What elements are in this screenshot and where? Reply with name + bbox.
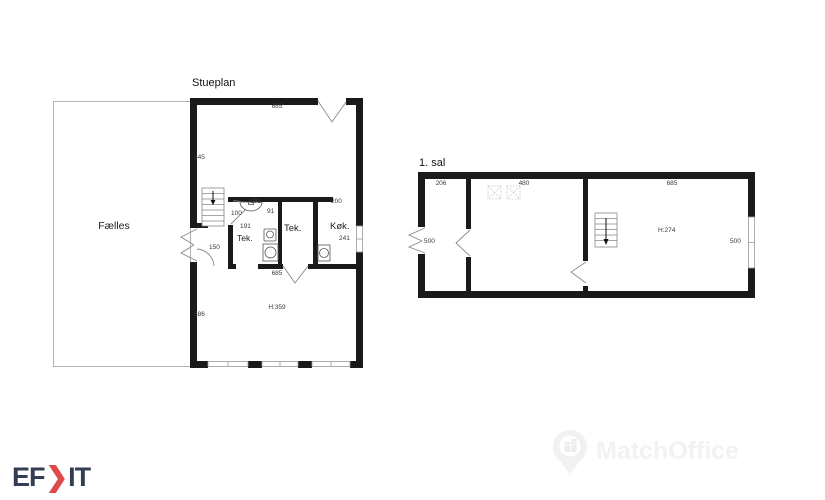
stueplan-exterior-walls [190,98,363,368]
top-double-door [318,101,346,122]
stueplan-plan [54,98,364,368]
dim-stueplan-top-width: 685 [272,104,283,111]
dim-ff-room3-width: 685 [667,181,678,188]
dim-ff-room1-width: 206 [436,181,447,188]
matchoffice-pin-icon [553,430,587,474]
dim-koekken-opening: 200 [331,199,342,206]
entry-door-leaf-top [181,229,197,245]
dim-ff-ceiling-height: H:274 [658,228,675,235]
skylight-icons [488,186,520,199]
dim-koekken-window: 241 [339,236,350,243]
room-label-tek-2: Tek. [284,224,301,234]
faelles-area-outline [54,102,191,367]
dim-ff-room2-width: 480 [519,181,530,188]
logo-suffix: IT [68,462,90,492]
dim-bath-width: 191 [250,199,261,206]
ff-door-room3 [571,262,586,283]
tek2-door [283,266,308,283]
floorplan-page: Stueplan 685 345 386 150 100 191 91 191 … [0,0,825,500]
entry-door-leaf-bottom [181,245,197,261]
ff-entry-leaf-top [409,228,425,241]
dim-stueplan-left-upper: 345 [194,155,205,162]
first-floor-doors [409,228,586,283]
room-label-faelles: Fælles [98,221,130,232]
dim-ceiling-height-stueplan: H:359 [268,305,285,312]
ff-entry-leaf-bottom [409,241,425,253]
ff-stairs-icon [595,213,617,247]
floorplan-geometry [0,0,825,500]
dim-stair-passage: 100 [231,211,242,218]
logo-prefix: EF [12,462,45,492]
dim-bath-inner: 191 [240,224,251,231]
dim-ff-room1-depth: 500 [424,239,435,246]
dim-stueplan-left-lower: 386 [194,312,205,319]
stueplan-title: Stueplan [192,78,235,89]
first-floor-interior-walls [466,179,588,291]
dim-ff-window-right: 500 [730,239,741,246]
ff-door-room1 [456,230,470,256]
stairs-icon [202,188,224,226]
efkt-logo: EF❯IT [12,464,90,491]
room-label-tek-bath: Tek. [237,234,253,243]
dim-bath-right: 91 [267,209,274,216]
first-floor-plan [409,172,755,298]
first-floor-title: 1. sal [419,158,445,169]
dim-block-bottom: 685 [272,271,283,278]
logo-chevron-icon: ❯ [45,462,69,492]
first-floor-window [749,217,755,268]
matchoffice-watermark: MatchOffice [596,439,739,464]
room-label-koekken: Køk. [330,222,350,232]
hall-door-arc [197,249,214,266]
dim-entry-door: 150 [209,245,220,252]
